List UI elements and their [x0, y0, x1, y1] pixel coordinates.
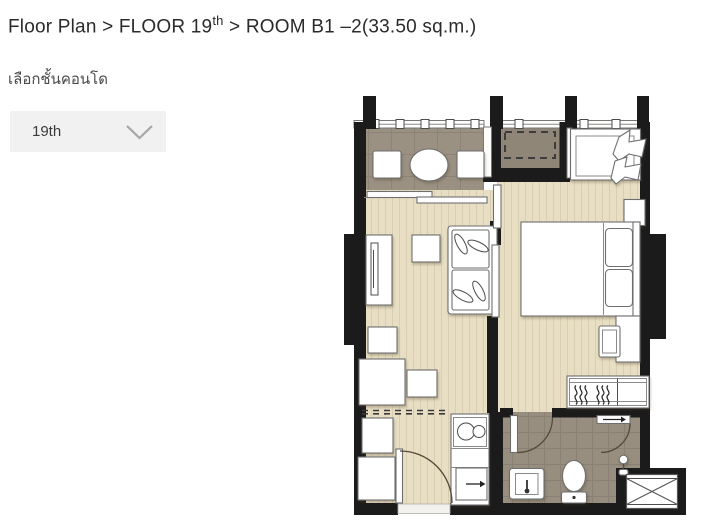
balcony-stool-left [373, 151, 401, 178]
balcony-furniture [373, 149, 484, 181]
cabinet-entry-1 [362, 418, 393, 453]
bed-pillow [606, 270, 633, 307]
cabinet-entry-2 [358, 457, 395, 500]
window-bench [571, 129, 647, 184]
stool-square [368, 327, 397, 353]
side-table [412, 235, 440, 262]
floor-plan [0, 0, 701, 525]
sink-basin-large [458, 423, 475, 440]
wardrobe [567, 376, 649, 408]
stool-square [407, 370, 437, 397]
kitchen [451, 414, 489, 505]
balcony-side-window [484, 127, 492, 177]
faucet-icon [525, 489, 530, 494]
headboard [633, 222, 640, 316]
balcony-stool-right [457, 151, 484, 178]
sofa [448, 226, 497, 314]
balcony-round-table [410, 149, 448, 181]
service-shaft [627, 475, 678, 509]
sink-basin-small [473, 426, 485, 438]
tv-icon [371, 243, 378, 295]
toilet [562, 461, 587, 504]
bathroom-sink [510, 469, 545, 500]
tv-cabinet [366, 235, 392, 305]
bed [521, 222, 640, 316]
low-table-large [359, 359, 405, 405]
bed-pillow [606, 229, 633, 267]
